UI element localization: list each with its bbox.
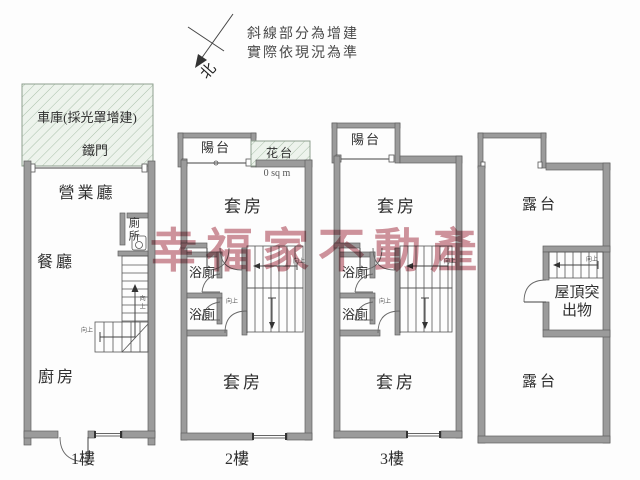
north-arrow-icon <box>188 14 233 68</box>
stair-up-label: 向上 <box>226 299 238 306</box>
room-label-garage: 車庫(採光罩增建) <box>37 110 137 126</box>
room-label-bath: 浴廁 <box>189 307 215 323</box>
room-label-kitchen: 廚房 <box>38 368 76 387</box>
room-label-balcony: 陽台 <box>201 140 231 156</box>
room-label-terrace: 露台 <box>522 373 558 391</box>
note-line1: 斜線部分為增建 <box>247 27 359 44</box>
floor-label-2f: 2樓 <box>225 450 249 469</box>
room-label-dining: 餐廳 <box>37 253 75 272</box>
room-label-sales-hall: 營業廳 <box>58 184 115 203</box>
room-label-balcony: 陽台 <box>351 132 381 148</box>
room-label-bath: 浴廁 <box>342 307 368 323</box>
agency-watermark: 幸福家不動產 <box>150 212 486 281</box>
floorplan-page: .w{fill:#9b9b9b;stroke:#5e5e5e;stroke-wi… <box>0 0 640 480</box>
stair-up-label: 向上 <box>81 328 93 335</box>
stair-up-label: 向上 <box>379 299 391 306</box>
room-label-toilet: 廁所 <box>126 217 139 243</box>
note-line2: 實際依現況為準 <box>247 46 359 63</box>
area-note: 0 sq m <box>264 168 291 180</box>
room-label-suite: 套房 <box>223 373 263 393</box>
floor-label-1f: 1樓 <box>71 450 95 469</box>
stair-up-label: 向上 <box>586 257 598 264</box>
room-label-terrace: 露台 <box>522 196 558 214</box>
room-label-suite: 套房 <box>376 373 416 393</box>
room-label-penthouse: 屋頂突出物 <box>551 284 603 320</box>
floor-label-3f: 3樓 <box>380 450 404 469</box>
label-iron-gate: 鐵門 <box>82 143 108 159</box>
stair-up-label: 向上 <box>137 295 144 311</box>
label-flower-bed: 花台 <box>266 146 294 160</box>
